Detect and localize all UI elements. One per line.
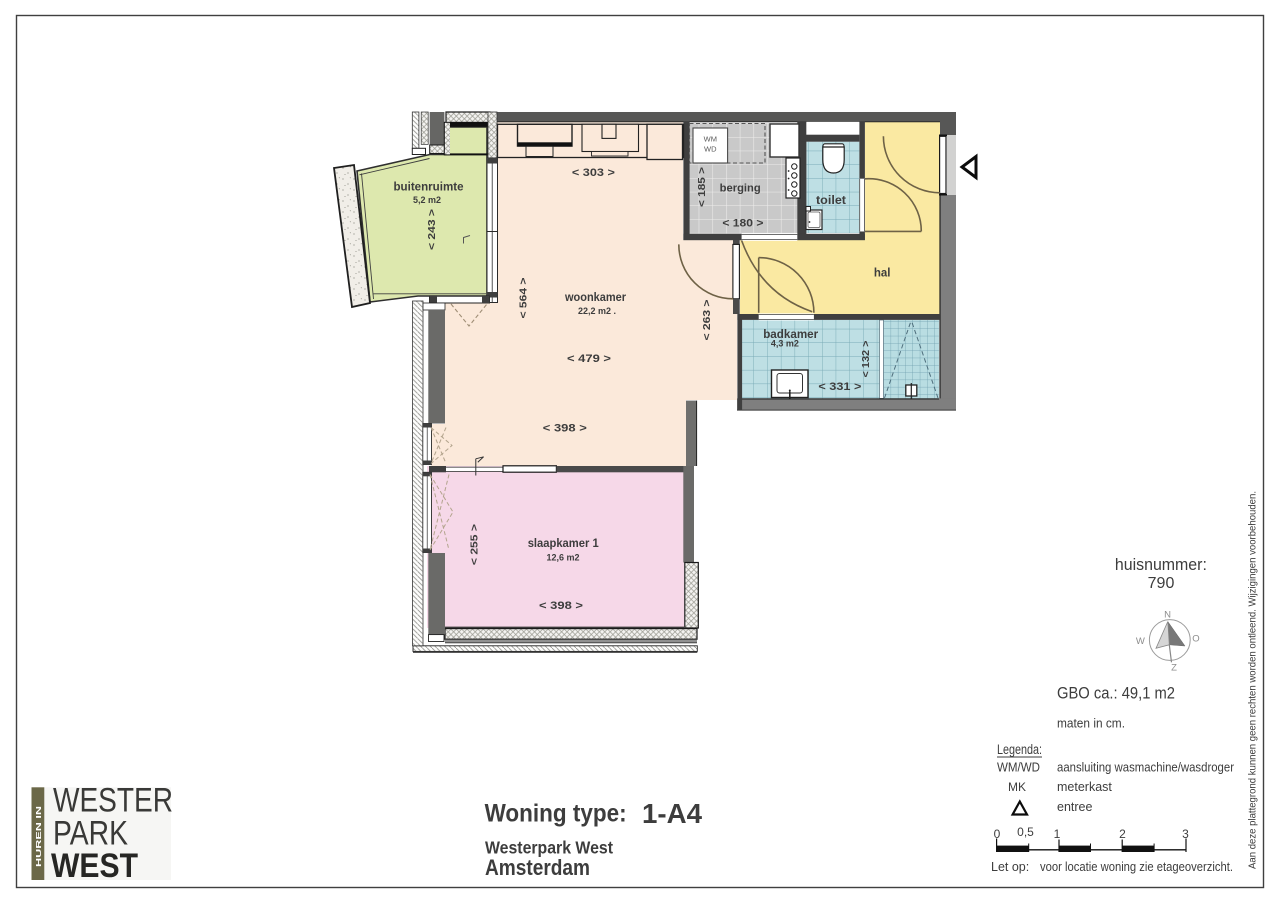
svg-text:entree: entree — [1057, 800, 1092, 814]
svg-text:berging: berging — [720, 183, 761, 195]
svg-text:< 564 >: < 564 > — [518, 278, 530, 319]
svg-text:WM/WD: WM/WD — [997, 760, 1040, 775]
svg-text:2: 2 — [1119, 827, 1126, 841]
svg-text:< 331 >: < 331 > — [818, 381, 861, 393]
svg-text:HUREN IN: HUREN IN — [34, 806, 43, 867]
svg-text:Amsterdam: Amsterdam — [485, 855, 590, 880]
svg-text:< 398 >: < 398 > — [539, 600, 583, 612]
svg-text:hal: hal — [874, 267, 891, 279]
svg-text:meterkast: meterkast — [1057, 780, 1112, 794]
svg-text:W: W — [1136, 636, 1145, 647]
svg-text:Z: Z — [1171, 663, 1177, 674]
svg-text:< 303 >: < 303 > — [572, 167, 615, 179]
svg-text:< 243 >: < 243 > — [426, 209, 438, 250]
svg-text:Let op:: Let op: — [991, 860, 1029, 874]
svg-text:MK: MK — [1008, 780, 1026, 794]
svg-text:22,2 m2 .: 22,2 m2 . — [578, 306, 616, 316]
svg-text:< 185 >: < 185 > — [696, 167, 708, 207]
svg-text:< 132 >: < 132 > — [860, 341, 872, 378]
svg-text:< 255 >: < 255 > — [468, 524, 480, 565]
svg-text:huisnummer:: huisnummer: — [1115, 556, 1207, 574]
svg-text:toilet: toilet — [816, 195, 846, 207]
svg-text:790: 790 — [1148, 575, 1175, 592]
svg-text:WM: WM — [704, 135, 717, 144]
svg-text:woonkamer: woonkamer — [564, 290, 626, 304]
svg-text:< 398 >: < 398 > — [543, 422, 587, 434]
svg-text:Aan deze plattegrond kunnen ge: Aan deze plattegrond kunnen geen rechten… — [1248, 491, 1259, 869]
svg-text:0: 0 — [994, 827, 1001, 841]
svg-text:12,6 m2: 12,6 m2 — [546, 553, 579, 563]
svg-text:slaapkamer 1: slaapkamer 1 — [528, 538, 600, 550]
svg-text:Legenda:: Legenda: — [997, 742, 1042, 757]
svg-text:1: 1 — [1054, 827, 1061, 841]
svg-text:3: 3 — [1182, 827, 1189, 841]
svg-text:1-A4: 1-A4 — [642, 798, 702, 829]
svg-text:0,5: 0,5 — [1017, 825, 1034, 839]
svg-text:buitenruimte: buitenruimte — [394, 182, 464, 194]
svg-text:N: N — [1164, 610, 1171, 621]
svg-text:aansluiting wasmachine/wasdrog: aansluiting wasmachine/wasdroger — [1057, 761, 1234, 775]
svg-text:WD: WD — [704, 145, 717, 154]
svg-text:GBO ca.: 49,1 m2: GBO ca.: 49,1 m2 — [1057, 685, 1175, 703]
svg-text:< 180 >: < 180 > — [722, 218, 763, 230]
svg-text:WEST: WEST — [51, 847, 138, 885]
svg-text:maten in cm.: maten in cm. — [1057, 716, 1125, 731]
svg-text:4,3 m2: 4,3 m2 — [771, 339, 799, 349]
svg-text:voor locatie woning zie etageo: voor locatie woning zie etageoverzicht. — [1040, 860, 1233, 874]
svg-text:5,2 m2: 5,2 m2 — [413, 195, 441, 205]
svg-text:< 263 >: < 263 > — [701, 300, 713, 341]
svg-text:O: O — [1192, 634, 1199, 645]
svg-text:Woning type:: Woning type: — [485, 800, 627, 828]
svg-text:< 479 >: < 479 > — [567, 353, 611, 365]
